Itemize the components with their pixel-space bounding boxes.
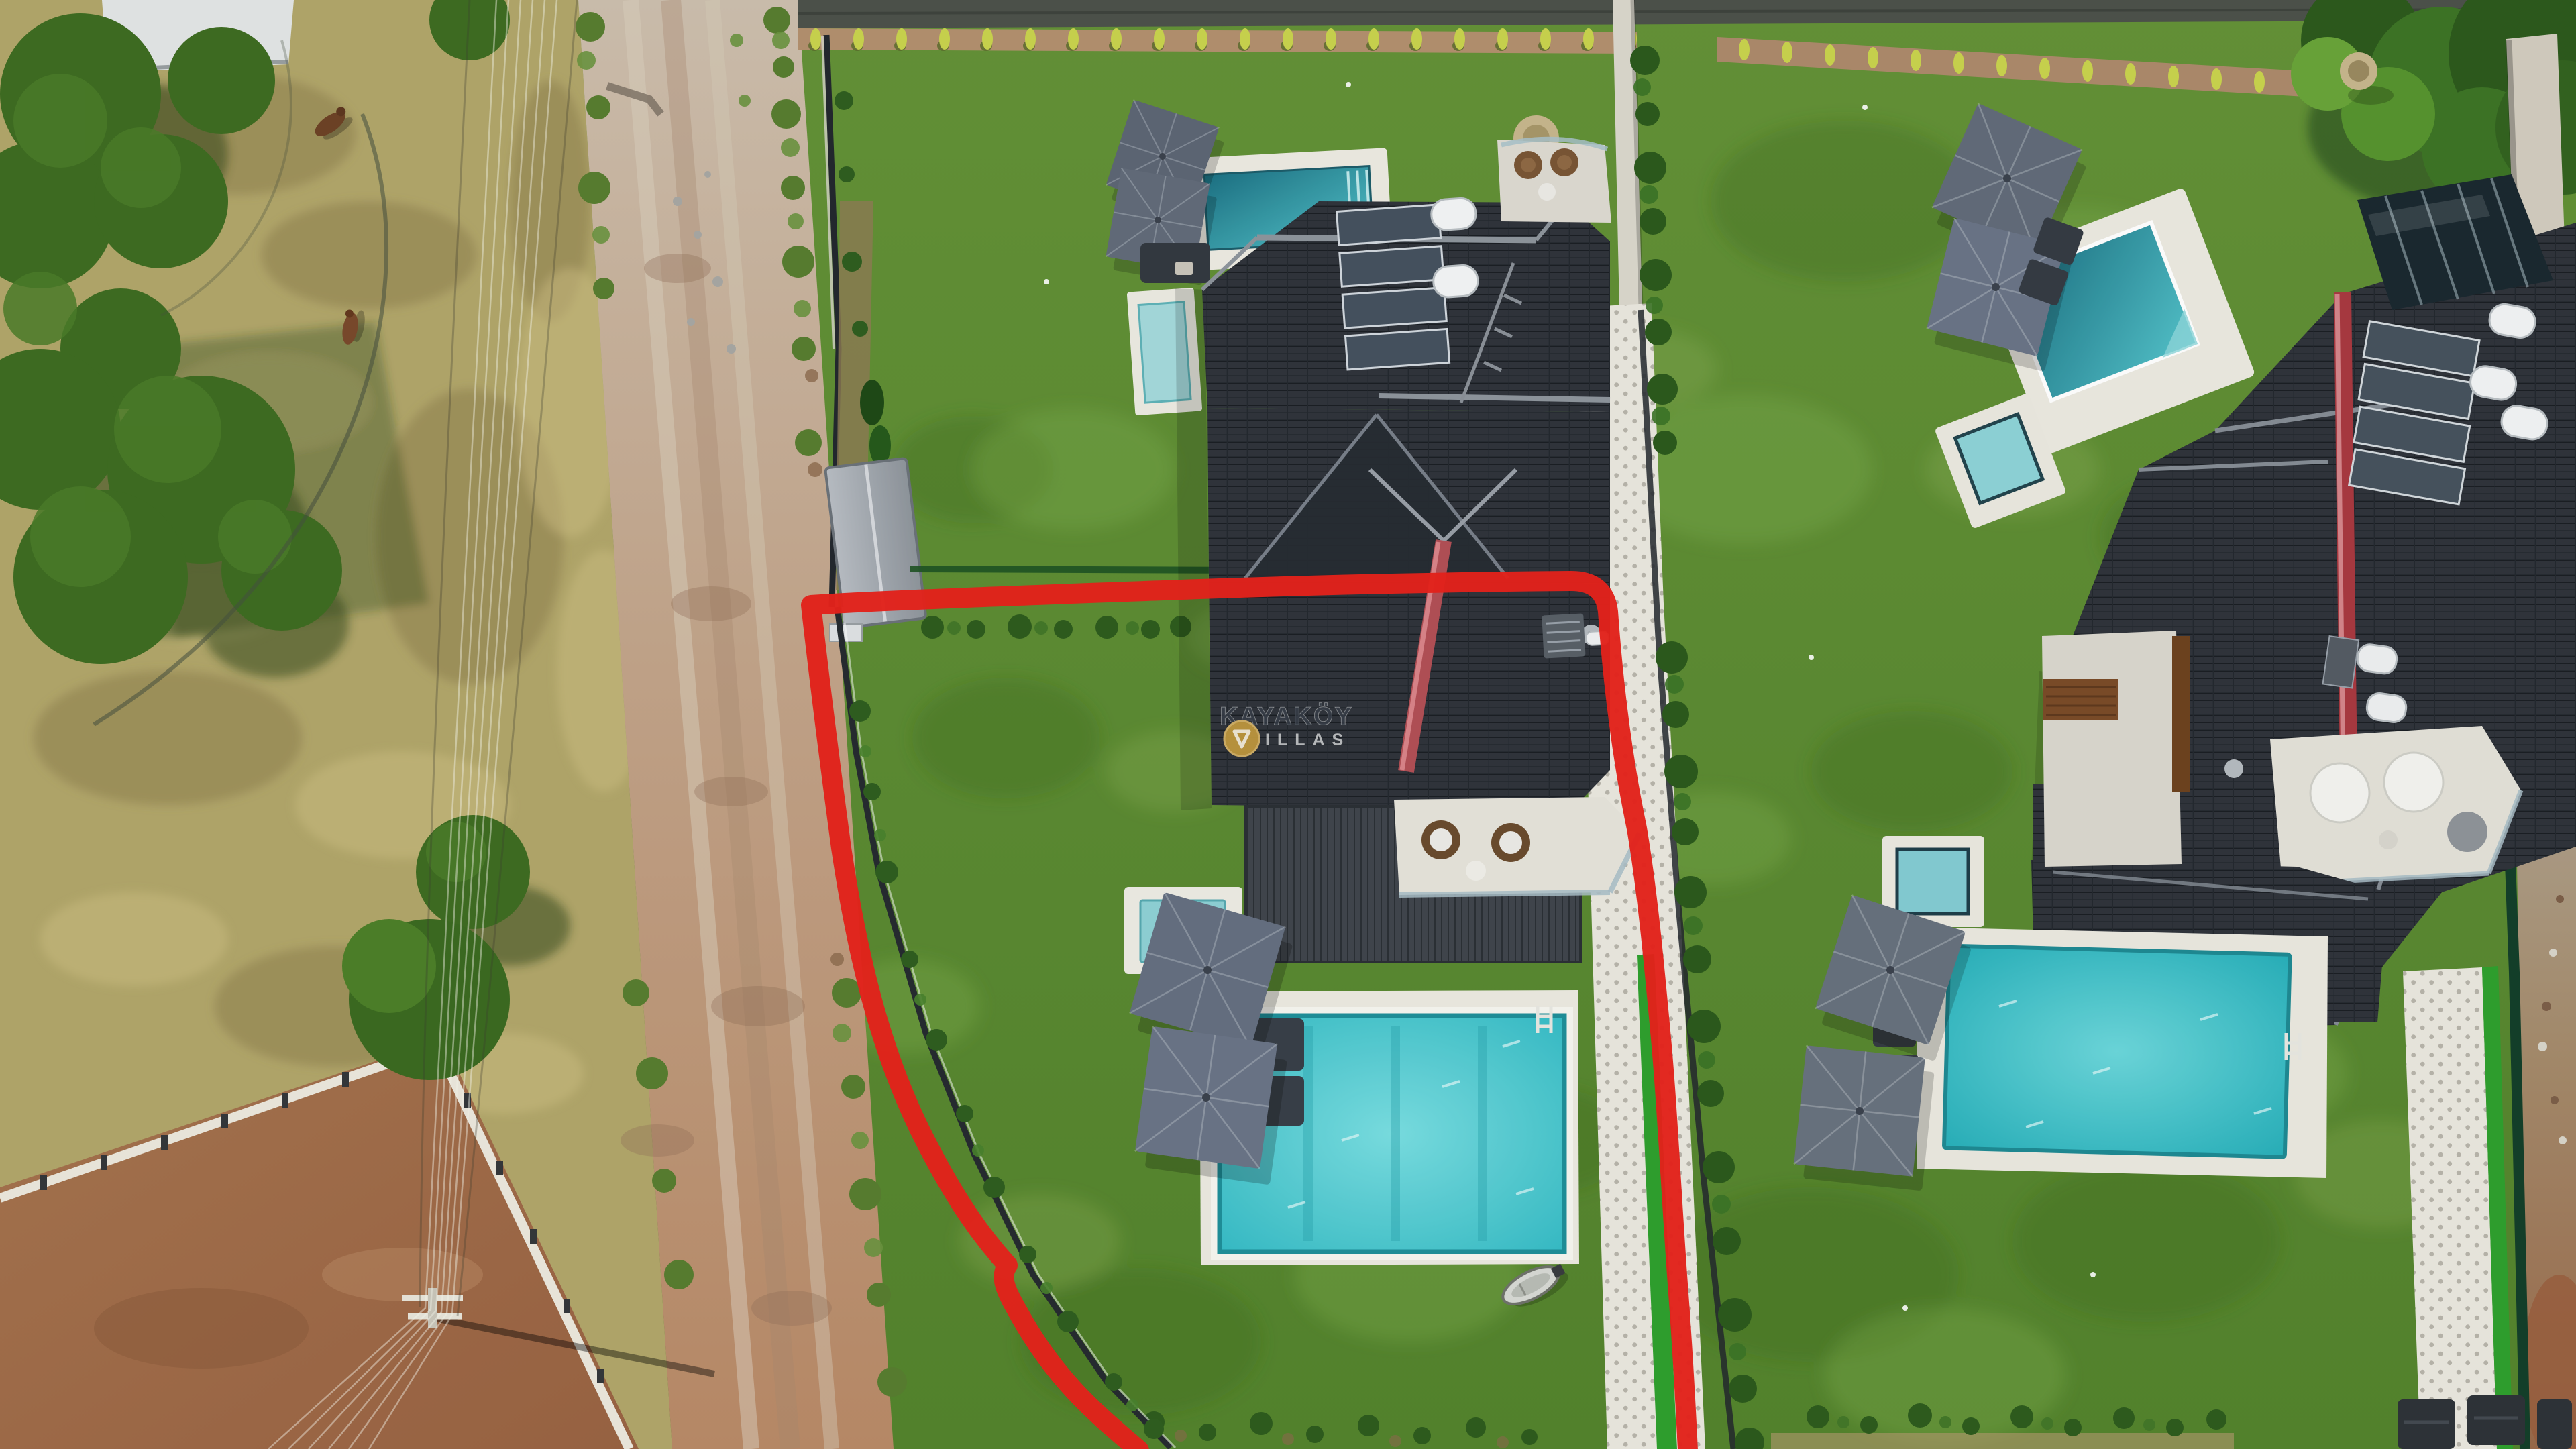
aerial-photo: KAYAKÖY ILLAS <box>0 0 2576 1449</box>
vignette <box>0 0 2576 1449</box>
